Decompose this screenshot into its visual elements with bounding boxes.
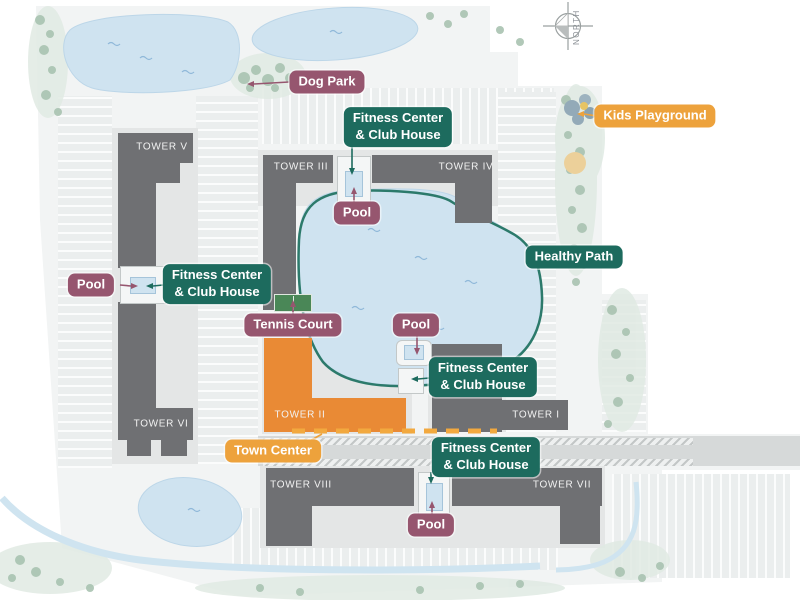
tower-iv-label: TOWER IV xyxy=(439,162,494,173)
tower-i-label: TOWER I xyxy=(512,410,560,421)
healthy-path-label: Healthy Path xyxy=(526,246,623,269)
tower-ii-label: TOWER II xyxy=(275,410,326,421)
town-center-label: Town Center xyxy=(225,440,321,463)
compass-north-label: NORTH xyxy=(572,9,581,45)
site-plan-map: NORTH TOWER V TOWER III TOWER IV TOWER V… xyxy=(0,0,800,600)
tower-iii-label: TOWER III xyxy=(274,162,328,173)
annotation-layer: NORTH xyxy=(0,0,800,600)
fitness-center-south-label: Fitness Center & Club House xyxy=(432,437,540,477)
tower-viii-label: TOWER VIII xyxy=(270,480,332,491)
tower-v-label: TOWER V xyxy=(136,142,187,153)
compass-icon: NORTH xyxy=(543,2,593,50)
fitness-center-central-label: Fitness Center & Club House xyxy=(429,357,537,397)
tower-vi-label: TOWER VI xyxy=(134,419,189,430)
fitness-center-west-label: Fitness Center & Club House xyxy=(163,264,271,304)
pool-central-label: Pool xyxy=(393,314,439,337)
tennis-court-label: Tennis Court xyxy=(244,314,341,337)
pool-west-label: Pool xyxy=(68,274,114,297)
fitness-center-north-label: Fitness Center & Club House xyxy=(344,107,452,147)
kids-playground-label: Kids Playground xyxy=(594,105,715,128)
pool-north-label: Pool xyxy=(334,202,380,225)
pool-south-label: Pool xyxy=(408,514,454,537)
tower-vii-label: TOWER VII xyxy=(533,480,591,491)
dog-park-label: Dog Park xyxy=(289,71,364,94)
